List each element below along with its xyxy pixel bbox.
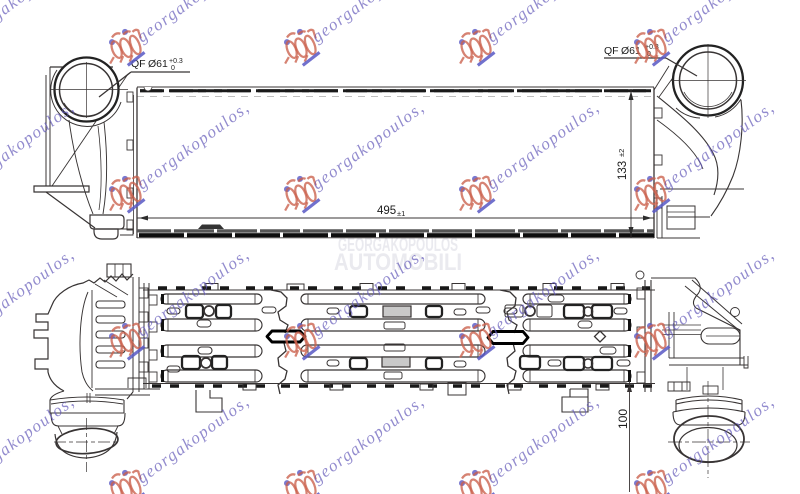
- svg-text:+0.3: +0.3: [169, 58, 183, 65]
- svg-text:±2: ±2: [617, 149, 626, 157]
- svg-text:Ø61: Ø61: [148, 58, 168, 70]
- svg-text:133: 133: [617, 161, 629, 180]
- svg-text:495: 495: [377, 205, 396, 217]
- svg-text:QF: QF: [604, 45, 619, 57]
- svg-text:0: 0: [171, 65, 175, 72]
- svg-text:100: 100: [616, 409, 630, 429]
- svg-text:±1: ±1: [397, 209, 405, 218]
